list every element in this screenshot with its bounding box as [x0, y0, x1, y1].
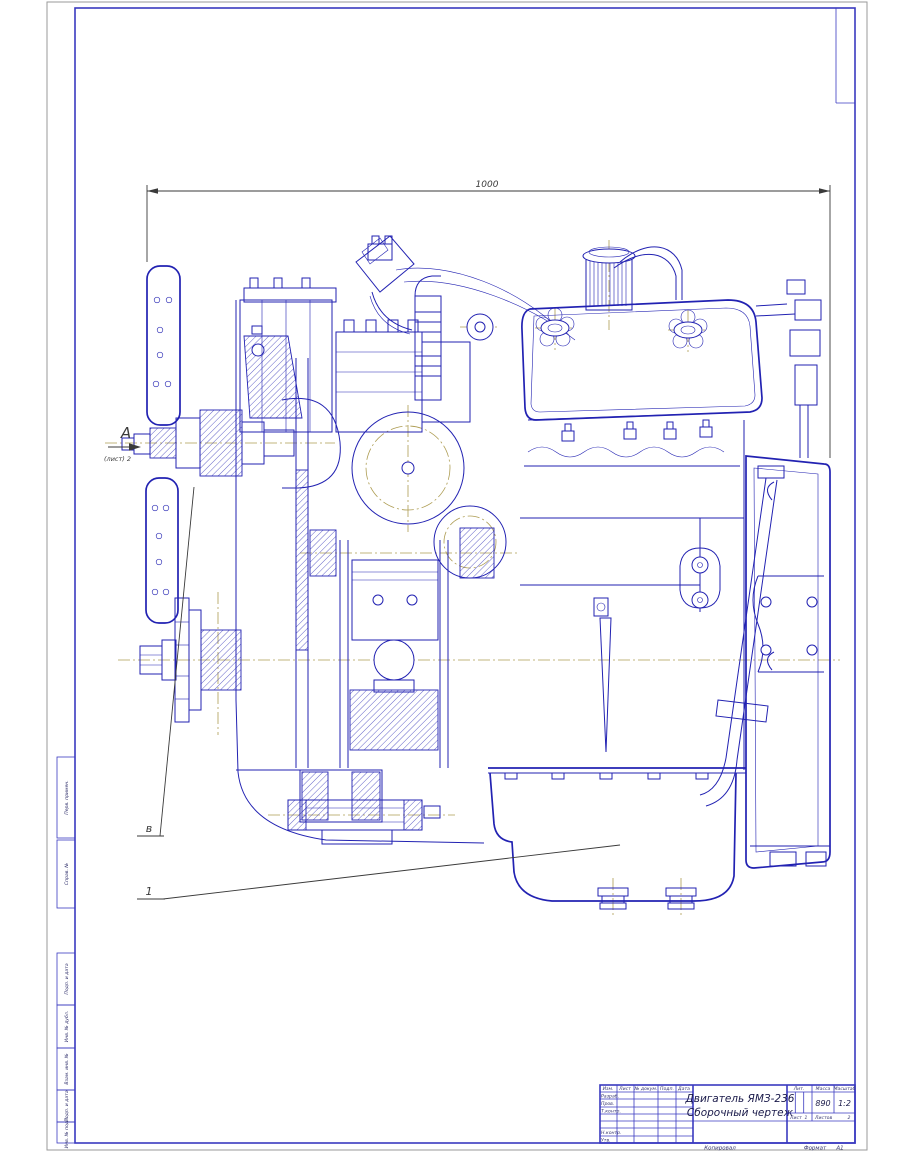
stamp-podp-data-1: Подп. и дата	[64, 963, 70, 994]
stamp-vzam-inv: Взам. инв. №	[64, 1053, 70, 1084]
stamp-inv-dubl: Инв. № дубл.	[64, 1011, 70, 1042]
svg-text:1: 1	[146, 885, 153, 898]
mass-label: Масса	[816, 1086, 831, 1092]
row-utv: Утв.	[601, 1138, 611, 1144]
col-data: Дата	[677, 1086, 690, 1092]
stamp-perv-primen: Перв. примен.	[64, 780, 70, 815]
format-value: А1	[835, 1146, 843, 1152]
format-label: Формат	[804, 1146, 827, 1152]
mass-value: 890	[815, 1099, 830, 1108]
stamp-inv-podl: Инв. № подл.	[64, 1117, 70, 1149]
view-letter: А	[120, 424, 131, 442]
row-nkontr: Н.контр.	[601, 1130, 622, 1136]
crank-journal	[374, 640, 414, 680]
svg-text:в: в	[146, 822, 152, 835]
row-prov: Пров.	[601, 1101, 614, 1107]
view-sheet-ref: (лист) 2	[104, 455, 131, 463]
sheets-value: 2	[848, 1115, 851, 1121]
col-izm: Изм.	[603, 1086, 614, 1092]
row-tkontr: Т.контр.	[601, 1109, 621, 1115]
drawing-sheet: Перв. примен. Справ. № Подп. и дата Инв.…	[0, 0, 910, 1155]
sheet-label: Лист	[789, 1115, 802, 1121]
engineering-drawing: Перв. примен. Справ. № Подп. и дата Инв.…	[0, 0, 910, 1155]
scale-value: 1:2	[838, 1099, 851, 1108]
stamp-sprav-no: Справ. №	[64, 863, 70, 886]
copied-label: Копировал	[704, 1146, 736, 1152]
scale-label: Масштаб	[834, 1086, 856, 1092]
sheets-label: Листов	[814, 1115, 832, 1121]
doc-title-line1: Двигатель ЯМЗ-236	[685, 1093, 795, 1105]
col-podp: Подп.	[660, 1086, 674, 1092]
col-list: Лист	[618, 1086, 631, 1092]
doc-title-line2: Сборочный чертеж	[687, 1107, 794, 1119]
dimension-value: 1000	[476, 180, 499, 190]
row-razrab: Разраб.	[601, 1094, 619, 1100]
lit-label: Лит.	[793, 1086, 805, 1092]
sheet-value: 1	[805, 1115, 808, 1121]
col-docnum: № докум.	[634, 1086, 658, 1092]
crank-web	[350, 690, 438, 750]
